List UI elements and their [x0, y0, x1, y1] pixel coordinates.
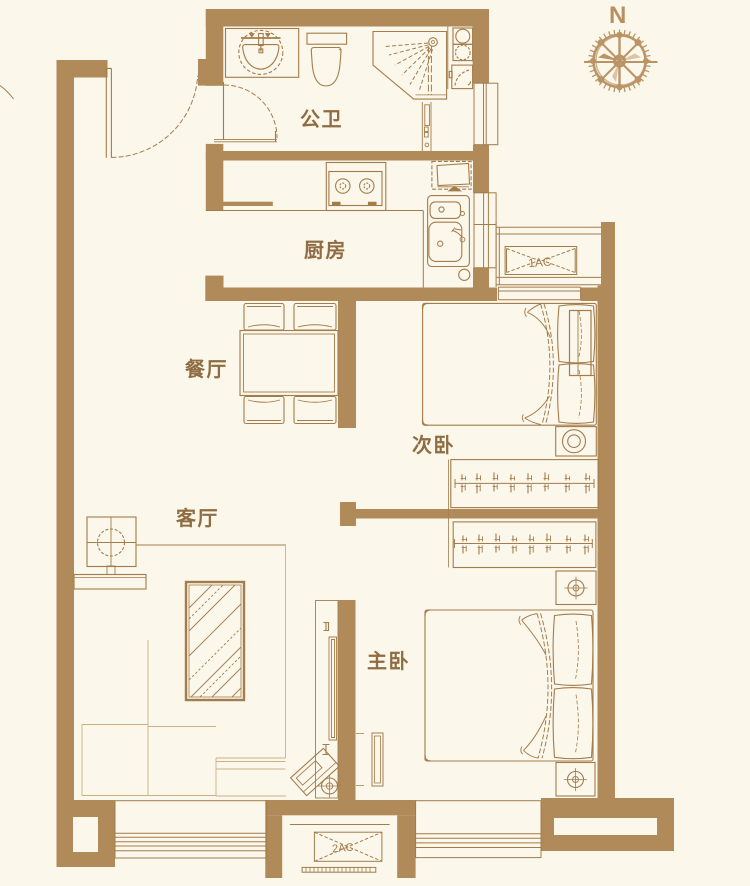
svg-text:主卧: 主卧	[367, 649, 410, 673]
svg-text:2AC: 2AC	[332, 842, 354, 856]
svg-text:餐厅: 餐厅	[185, 357, 228, 381]
svg-text:公卫: 公卫	[300, 108, 343, 131]
svg-text:1AC: 1AC	[528, 255, 553, 271]
svg-text:厨房: 厨房	[304, 238, 347, 262]
svg-text:次卧: 次卧	[412, 433, 455, 457]
svg-text:N: N	[609, 2, 626, 29]
svg-text:客厅: 客厅	[175, 506, 219, 530]
